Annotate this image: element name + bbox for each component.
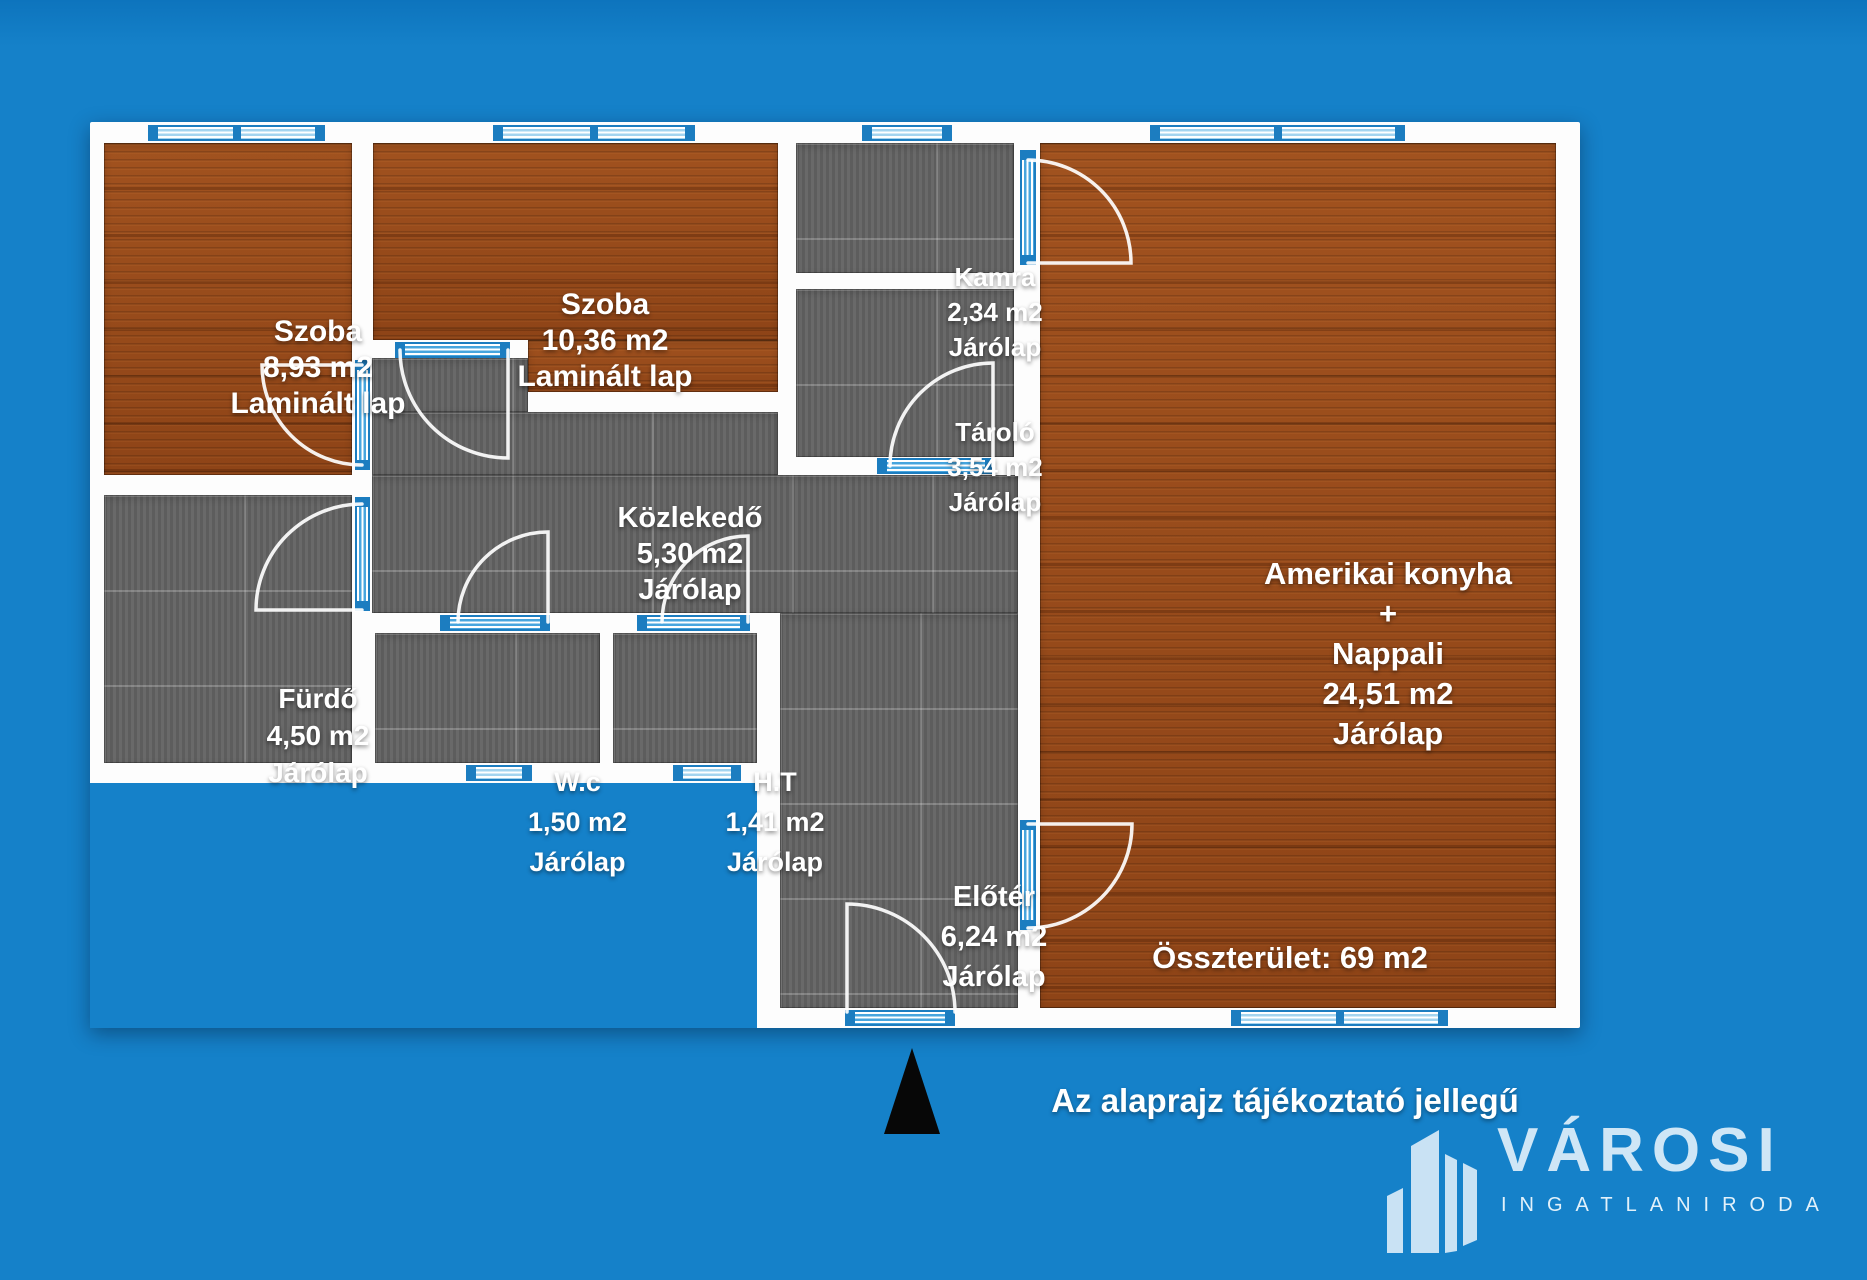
room-name: Szoba	[380, 287, 830, 323]
room-name: Közlekedő	[480, 500, 900, 536]
door-wc-icon	[440, 615, 550, 631]
city-buildings-icon	[1385, 1120, 1485, 1255]
room-floor: Járólap	[194, 754, 442, 791]
window-nappali-bottom-icon	[1231, 1010, 1448, 1026]
room-label-szoba2: Szoba 10,36 m2 Laminált lap	[380, 287, 830, 395]
room-kamra-floor	[796, 143, 1014, 273]
window-divider-icon	[233, 125, 241, 141]
window-divider-icon	[590, 125, 598, 141]
room-area: 4,50 m2	[194, 717, 442, 754]
room-label-nappali: Amerikai konyha + Nappali 24,51 m2 Járól…	[1130, 554, 1646, 754]
room-label-furdo: Fürdő 4,50 m2 Járólap	[194, 680, 442, 791]
floorplan-canvas: Szoba 8,93 m2 Laminált lap Szoba 10,36 m…	[0, 0, 1867, 1280]
floorplan: Szoba 8,93 m2 Laminált lap Szoba 10,36 m…	[90, 122, 1580, 1028]
room-name: W.c	[465, 762, 690, 802]
brand-subtitle: INGATLANIRODA	[1501, 1194, 1831, 1216]
room-label-kamra: Kamra 2,34 m2 Járólap	[886, 260, 1104, 365]
window-szoba2-top-icon	[493, 125, 695, 141]
room-label-ht: H.T 1,41 m2 Járólap	[703, 762, 847, 882]
room-szoba1-floor	[104, 143, 352, 475]
room-label-wc: W.c 1,50 m2 Járólap	[465, 762, 690, 882]
room-floor: Laminált lap	[380, 359, 830, 395]
room-area: 3,54 m2	[886, 450, 1104, 485]
room-name-plus: +	[1130, 594, 1646, 634]
north-arrow-icon	[884, 1048, 940, 1134]
room-label-kozlekedo: Közlekedő 5,30 m2 Járólap	[480, 500, 900, 608]
room-name2: Nappali	[1130, 634, 1646, 674]
window-nappali-top-icon	[1150, 125, 1405, 141]
room-area: 24,51 m2	[1130, 674, 1646, 714]
room-area: 10,36 m2	[380, 323, 830, 359]
room-floor: Járólap	[703, 842, 847, 882]
brand-name: VÁROSI	[1497, 1120, 1827, 1182]
room-label-tarolo: Tároló 3,54 m2 Járólap	[886, 415, 1104, 520]
window-divider-icon	[1336, 1010, 1344, 1026]
room-floor: Járólap	[1130, 714, 1646, 754]
door-entrance-icon	[845, 1010, 955, 1026]
total-area-label: Összterület: 69 m2	[1050, 940, 1530, 976]
door-furdo-icon	[355, 497, 370, 611]
room-label-eloter: Előtér 6,24 m2 Járólap	[880, 877, 1108, 997]
door-kamra-icon	[1020, 150, 1036, 265]
door-ht-icon	[637, 615, 750, 631]
room-ht-floor	[613, 633, 757, 763]
room-name: H.T	[703, 762, 847, 802]
window-szoba1-top-icon	[148, 125, 325, 141]
window-kamra-top-icon	[862, 125, 952, 141]
room-name: Előtér	[880, 877, 1108, 917]
room-area: 1,50 m2	[465, 802, 690, 842]
room-floor: Járólap	[886, 485, 1104, 520]
room-area: 5,30 m2	[480, 536, 900, 572]
room-name: Tároló	[886, 415, 1104, 450]
room-floor: Járólap	[480, 572, 900, 608]
room-name: Kamra	[886, 260, 1104, 295]
room-floor: Járólap	[465, 842, 690, 882]
room-name: Amerikai konyha	[1130, 554, 1646, 594]
window-divider-icon	[1274, 125, 1282, 141]
room-name: Fürdő	[194, 680, 442, 717]
room-floor: Járólap	[886, 330, 1104, 365]
brand-logo: VÁROSI INGATLANIRODA	[1385, 1112, 1835, 1257]
room-area: 1,41 m2	[703, 802, 847, 842]
room-area: 2,34 m2	[886, 295, 1104, 330]
